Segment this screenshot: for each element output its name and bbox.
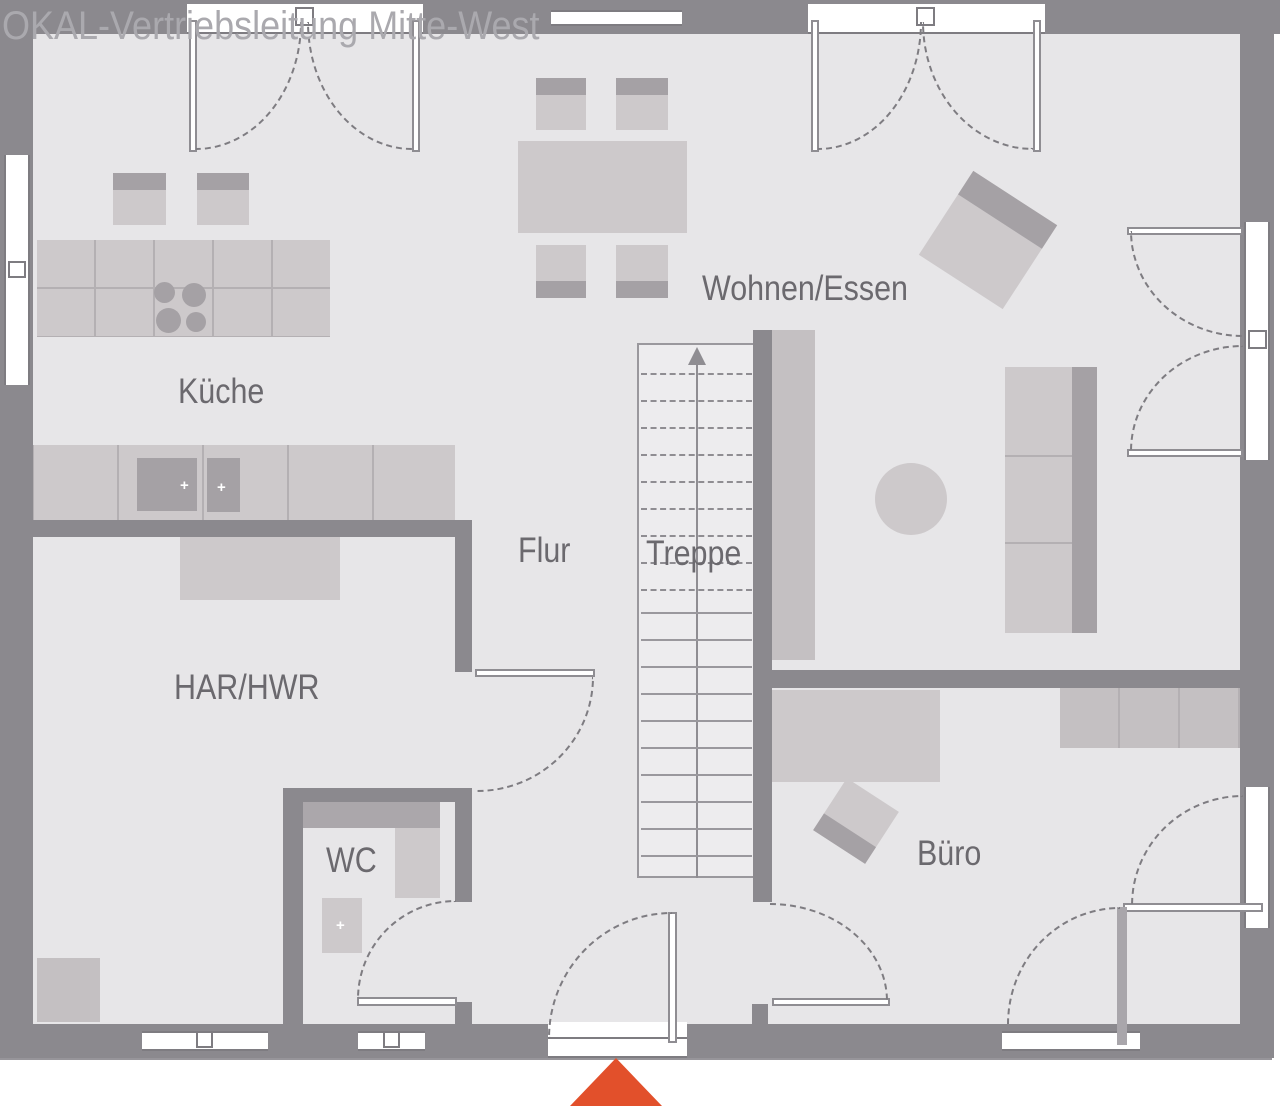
window-top-center [551, 10, 682, 26]
window-symbol-icon [8, 261, 26, 278]
wall-wc-right-stub [455, 1002, 472, 1024]
wall-wc-right [455, 788, 472, 902]
cooktop-burner-icon [154, 282, 175, 303]
staircase [637, 343, 753, 878]
stair-tread-dashed [641, 481, 752, 483]
sofa-cushion-line [1005, 542, 1072, 544]
side-table [875, 463, 947, 535]
room-label-kueche: Küche [178, 372, 264, 412]
room-label-wohnen-essen: Wohnen/Essen [702, 269, 908, 309]
fixture-marker-icon: + [217, 480, 226, 495]
stair-tread-solid [641, 612, 752, 614]
stair-tread-solid [641, 855, 752, 857]
stair-tread-solid [641, 639, 752, 641]
room-label-buero: Büro [917, 834, 981, 874]
wc-toilet [395, 828, 440, 898]
room-label-wc: WC [326, 841, 377, 881]
fixture-marker-icon: + [336, 918, 345, 933]
bar-stool-back [197, 173, 249, 190]
har-corner-cabinet [37, 958, 100, 1022]
har-appliance-block [180, 537, 340, 600]
cooktop-burner-icon [186, 312, 206, 332]
stair-up-arrow-icon [688, 347, 706, 365]
stair-tread-solid [641, 801, 752, 803]
sofa-back [1072, 367, 1097, 633]
stair-tread-solid [641, 828, 752, 830]
wall-har-flur [455, 520, 472, 672]
office-shelf [1060, 688, 1240, 748]
french-door-top-right-leaf [1033, 20, 1041, 152]
wall-wc-left [283, 788, 303, 1024]
wall-staircase [753, 330, 772, 902]
floor-plan: + + + Küche Wohnen/Essen Flur Treppe HAR… [0, 0, 1280, 1106]
room-label-treppe: Treppe [646, 534, 741, 574]
fixture-marker-icon: + [180, 478, 189, 493]
desk [772, 690, 940, 782]
kitchen-counter [33, 445, 455, 520]
room-label-flur: Flur [518, 531, 570, 571]
wall-wohnen-buero [753, 670, 1240, 688]
wall-entry-stub [752, 1004, 768, 1024]
stair-tread-dashed [641, 427, 752, 429]
stair-tread-solid [641, 693, 752, 695]
dining-table [518, 141, 687, 233]
room-label-har-hwr: HAR/HWR [174, 668, 319, 708]
stair-tread-dashed [641, 400, 752, 402]
cooktop-burner-icon [156, 308, 181, 333]
bar-stool-back [113, 173, 166, 190]
wall-kitchen-har [33, 520, 455, 537]
dining-chair-back [536, 78, 586, 95]
entrance-marker-icon [570, 1058, 662, 1106]
cooktop-burner-icon [182, 283, 206, 307]
stair-tread-solid [641, 747, 752, 749]
sofa-cushion-line [1005, 455, 1072, 457]
stair-tread-dashed [641, 454, 752, 456]
stair-tread-solid [641, 666, 752, 668]
dining-chair-back [536, 281, 586, 298]
stair-tread-solid [641, 774, 752, 776]
window-symbol-icon [383, 1031, 400, 1048]
window-symbol-icon [1248, 330, 1267, 349]
stair-tread-solid [641, 720, 752, 722]
sideboard [772, 330, 815, 660]
stair-tread-dashed [641, 373, 752, 375]
dining-chair-back [616, 281, 668, 298]
stair-tread-dashed [641, 589, 752, 591]
window-symbol-icon [196, 1031, 213, 1048]
har-hwr-door-leaf [475, 669, 595, 677]
watermark-text: OKAL-Vertriebsleitung Mitte-West [2, 4, 540, 49]
wall-wc-top [283, 788, 472, 802]
wc-shelf [303, 802, 440, 828]
stair-tread-dashed [641, 508, 752, 510]
dining-chair-back [616, 78, 668, 95]
